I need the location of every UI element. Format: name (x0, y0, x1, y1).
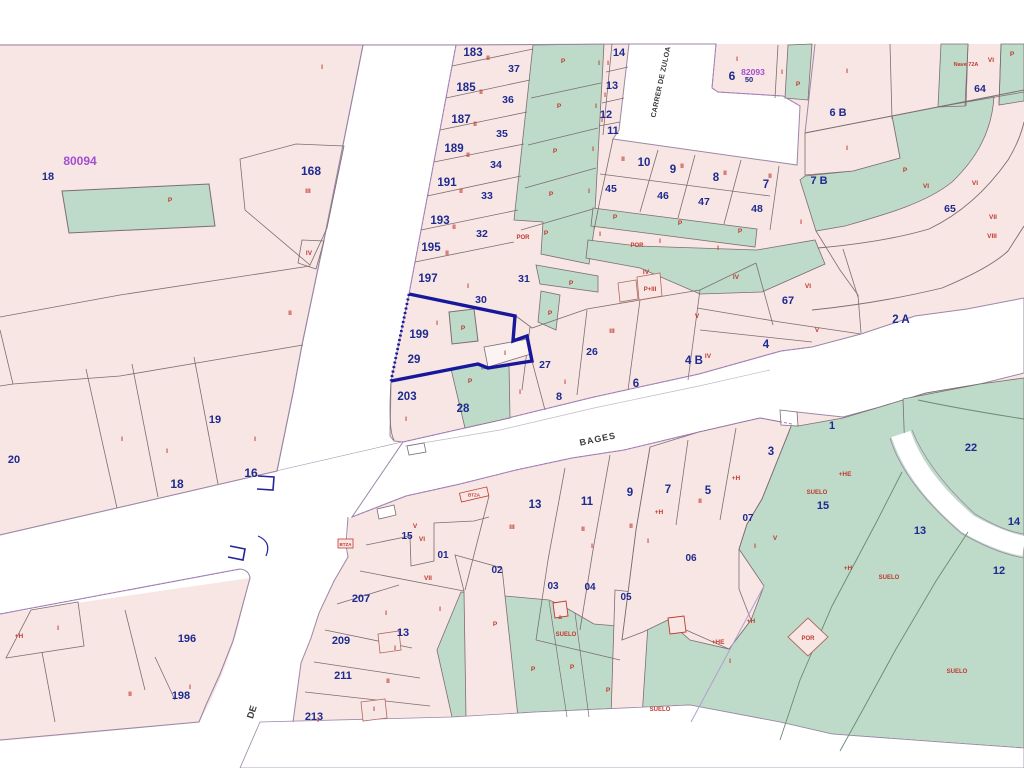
svg-text:II: II (680, 163, 684, 170)
svg-text:198: 198 (172, 690, 190, 702)
svg-text:P: P (903, 167, 908, 174)
svg-text:67: 67 (782, 295, 794, 307)
svg-text:203: 203 (397, 391, 416, 403)
svg-text:II: II (459, 188, 463, 195)
svg-text:64: 64 (974, 83, 986, 95)
svg-text:I: I (394, 645, 396, 652)
svg-text:183: 183 (463, 47, 482, 59)
svg-text:POR: POR (630, 243, 644, 249)
svg-text:47: 47 (698, 196, 710, 208)
svg-text:28: 28 (457, 403, 470, 415)
svg-text:SUELO: SUELO (650, 707, 671, 713)
svg-text:P: P (461, 325, 466, 332)
svg-text:48: 48 (751, 203, 763, 215)
svg-text:199: 199 (409, 329, 428, 341)
svg-text:P: P (561, 58, 566, 65)
svg-text:POR: POR (516, 235, 530, 241)
svg-text:35: 35 (496, 128, 508, 140)
svg-text:SUELO: SUELO (947, 669, 968, 675)
svg-text:22: 22 (965, 442, 977, 454)
svg-text:6 B: 6 B (829, 107, 846, 119)
svg-text:18: 18 (42, 171, 54, 183)
svg-text:I: I (659, 238, 661, 245)
svg-text:I: I (317, 717, 319, 724)
svg-text:+HE: +HE (839, 471, 852, 478)
svg-text:I: I (467, 283, 469, 290)
svg-text:+H: +H (15, 633, 24, 640)
svg-text:20: 20 (8, 454, 20, 466)
svg-text:IV: IV (733, 274, 740, 281)
svg-text:I: I (599, 231, 601, 238)
svg-text:32: 32 (476, 228, 488, 240)
svg-text:209: 209 (332, 635, 350, 647)
svg-text:P: P (569, 280, 574, 287)
svg-text:II: II (621, 156, 625, 163)
svg-text:VII: VII (989, 214, 997, 221)
svg-text:189: 189 (444, 143, 463, 155)
svg-text:P: P (493, 621, 498, 628)
svg-text:SUELO: SUELO (807, 490, 828, 496)
svg-text:15: 15 (817, 500, 829, 512)
svg-text:I: I (598, 60, 600, 67)
svg-text:9: 9 (670, 164, 676, 176)
svg-text:BTZA: BTZA (340, 542, 353, 547)
svg-text:II: II (479, 89, 483, 96)
svg-text:SUELO: SUELO (879, 575, 900, 581)
svg-text:II: II (723, 170, 727, 177)
svg-text:I: I (781, 69, 783, 76)
svg-text:P: P (570, 664, 575, 671)
svg-text:IV: IV (705, 353, 712, 360)
svg-text:5: 5 (705, 485, 712, 497)
svg-text:P: P (168, 197, 173, 204)
svg-text:+HE: +HE (712, 639, 725, 646)
svg-text:13: 13 (914, 525, 926, 537)
svg-text:BTZA: BTZA (468, 493, 481, 498)
svg-text:10: 10 (638, 157, 651, 169)
svg-text:III: III (509, 524, 515, 531)
svg-text:I: I (592, 146, 594, 153)
svg-text:30: 30 (475, 294, 487, 306)
svg-text:I: I (846, 145, 848, 152)
svg-text:6: 6 (729, 69, 736, 83)
svg-text:VI: VI (923, 183, 929, 190)
svg-text:II: II (466, 152, 470, 159)
svg-text:02: 02 (491, 565, 503, 576)
svg-text:I: I (166, 448, 168, 455)
svg-text:I: I (564, 379, 566, 386)
svg-text:I: I (591, 543, 593, 550)
svg-text:8: 8 (556, 391, 562, 403)
svg-text:36: 36 (502, 94, 514, 106)
svg-text:50: 50 (745, 75, 753, 84)
svg-text:P: P (544, 230, 549, 237)
svg-text:II: II (288, 310, 292, 317)
svg-text:195: 195 (421, 242, 441, 254)
svg-text:13: 13 (529, 499, 542, 511)
svg-text:VIII: VIII (987, 233, 997, 240)
svg-text:29: 29 (408, 354, 421, 366)
svg-text:34: 34 (490, 159, 502, 171)
svg-text:VI: VI (988, 57, 994, 64)
svg-text:I: I (595, 103, 597, 110)
svg-text:P: P (557, 103, 562, 110)
svg-text:I: I (385, 610, 387, 617)
svg-text:3: 3 (768, 446, 774, 458)
svg-text:a: a (558, 614, 562, 621)
svg-text:+H: +H (844, 565, 853, 572)
svg-text:26: 26 (586, 346, 598, 358)
svg-text:II: II (768, 173, 772, 180)
svg-text:14: 14 (613, 47, 626, 59)
svg-text:I: I (436, 320, 438, 327)
svg-text:15: 15 (401, 531, 413, 542)
svg-text:P: P (553, 148, 558, 155)
svg-text:I: I (729, 658, 731, 665)
svg-text:4 B: 4 B (685, 355, 703, 367)
svg-text:I: I (439, 606, 441, 613)
svg-text:13: 13 (606, 80, 618, 92)
svg-text:12: 12 (993, 565, 1005, 577)
svg-text:I: I (588, 188, 590, 195)
svg-text:V: V (815, 327, 820, 334)
svg-text:II: II (445, 250, 449, 257)
svg-text:P: P (468, 378, 473, 385)
svg-text:46: 46 (657, 190, 669, 202)
svg-text:P: P (678, 220, 683, 227)
svg-text:I: I (321, 64, 323, 71)
svg-text:P: P (531, 666, 536, 673)
svg-text:45: 45 (605, 183, 617, 195)
svg-text:11: 11 (607, 125, 619, 137)
svg-text:SUELO: SUELO (556, 632, 577, 638)
svg-text:+H: +H (747, 618, 756, 625)
svg-text:V: V (695, 313, 700, 320)
svg-text:IV: IV (643, 269, 650, 276)
svg-text:13: 13 (397, 627, 409, 639)
svg-text:II: II (486, 55, 490, 62)
svg-text:P: P (738, 228, 743, 235)
svg-text:I: I (504, 350, 506, 357)
svg-text:06: 06 (685, 553, 697, 564)
svg-text:V: V (413, 523, 418, 530)
svg-text:196: 196 (178, 633, 196, 645)
svg-text:I: I (373, 706, 375, 713)
svg-text:II: II (128, 691, 132, 698)
svg-text:P: P (613, 214, 618, 221)
svg-text:I: I (189, 684, 191, 691)
svg-text:Nave 72A: Nave 72A (954, 62, 979, 68)
svg-text:P: P (549, 191, 554, 198)
svg-text:11: 11 (581, 496, 594, 508)
svg-text:65: 65 (944, 203, 956, 215)
svg-text:I: I (736, 56, 738, 63)
svg-text:I: I (607, 60, 609, 67)
svg-text:I: I (800, 219, 802, 226)
svg-text:I: I (405, 416, 407, 423)
svg-text:III: III (609, 328, 615, 335)
svg-text:II: II (581, 526, 585, 533)
svg-text:31: 31 (518, 273, 530, 285)
svg-text:V: V (773, 535, 778, 542)
svg-text:VI: VI (972, 180, 978, 187)
svg-text:III: III (305, 188, 311, 195)
svg-text:VI: VI (419, 536, 425, 543)
svg-text:I: I (254, 436, 256, 443)
svg-text:2 A: 2 A (892, 314, 909, 326)
svg-text:19: 19 (209, 414, 221, 426)
svg-text:185: 185 (456, 82, 476, 94)
svg-text:18: 18 (170, 477, 184, 491)
svg-text:II: II (629, 523, 633, 530)
svg-text:I: I (121, 436, 123, 443)
svg-text:POR: POR (801, 636, 815, 642)
svg-text:6: 6 (633, 378, 639, 390)
svg-text:I: I (647, 538, 649, 545)
svg-text:80094: 80094 (63, 154, 97, 168)
svg-text:I: I (519, 389, 521, 396)
svg-text:33: 33 (481, 190, 493, 202)
svg-text:04: 04 (584, 582, 596, 593)
svg-text:+H: +H (655, 509, 664, 516)
svg-text:14: 14 (1008, 516, 1021, 528)
svg-text:P: P (1010, 51, 1015, 58)
svg-text:II: II (698, 498, 702, 505)
svg-text:211: 211 (334, 670, 352, 682)
svg-text:II: II (452, 224, 456, 231)
svg-text:37: 37 (508, 63, 520, 75)
svg-text:I: I (57, 625, 59, 632)
svg-text:9: 9 (627, 487, 633, 499)
svg-text:207: 207 (352, 593, 370, 605)
svg-text:191: 191 (437, 177, 457, 189)
svg-text:03: 03 (547, 581, 559, 592)
svg-text:1: 1 (829, 420, 835, 432)
svg-text:4: 4 (763, 339, 770, 351)
svg-text:P: P (796, 81, 801, 88)
svg-text:05: 05 (620, 592, 632, 603)
svg-text:187: 187 (451, 114, 470, 126)
svg-text:7 B: 7 B (810, 175, 827, 187)
svg-text:+H: +H (732, 475, 741, 482)
svg-text:P+III: P+III (644, 287, 657, 293)
svg-text:VI: VI (805, 283, 811, 290)
svg-text:197: 197 (418, 273, 437, 285)
svg-text:I: I (717, 245, 719, 252)
svg-text:I: I (601, 117, 603, 124)
svg-text:213: 213 (305, 711, 323, 723)
svg-text:27: 27 (539, 359, 551, 371)
svg-text:7: 7 (763, 179, 769, 191)
svg-text:168: 168 (301, 164, 321, 178)
svg-text:7: 7 (665, 484, 671, 496)
svg-text:I: I (754, 543, 756, 550)
svg-text:01: 01 (437, 550, 449, 561)
svg-text:P: P (548, 310, 553, 317)
svg-text:P: P (606, 687, 611, 694)
svg-text:IV: IV (306, 250, 313, 257)
svg-text:II: II (473, 121, 477, 128)
svg-text:8: 8 (713, 172, 720, 184)
svg-text:VII: VII (424, 575, 432, 582)
svg-text:I: I (846, 68, 848, 75)
svg-text:I: I (604, 92, 606, 99)
svg-text:16: 16 (244, 466, 258, 480)
svg-text:193: 193 (430, 215, 449, 227)
svg-text:II: II (386, 678, 390, 685)
svg-text:07: 07 (742, 513, 754, 524)
